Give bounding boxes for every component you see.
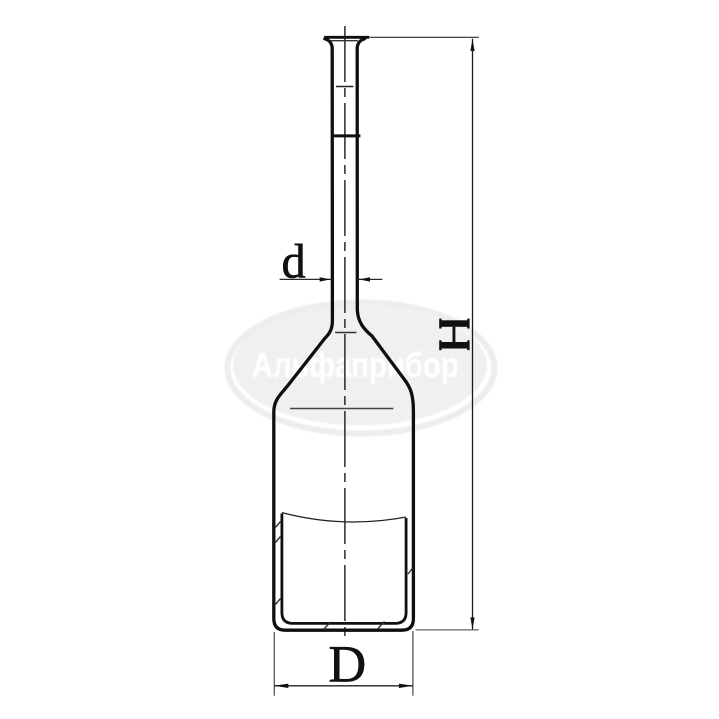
svg-text:D: D	[328, 636, 366, 694]
svg-text:Альфаприбор: Альфаприбор	[252, 346, 459, 385]
svg-text:d: d	[281, 236, 305, 289]
